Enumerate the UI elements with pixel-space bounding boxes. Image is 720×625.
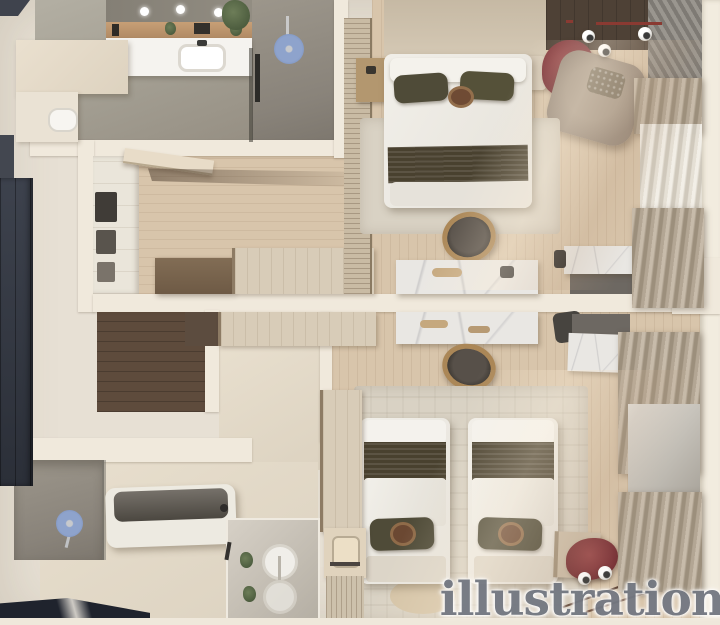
mirror-light-2	[176, 5, 185, 14]
twin-bed-1-foot	[366, 556, 446, 582]
vanity-corner-plant	[222, 0, 250, 30]
shower-glass-panel	[249, 48, 253, 142]
kids-desk	[396, 312, 538, 344]
bath2-plant-1	[240, 552, 253, 568]
shelf-plant	[165, 22, 176, 35]
pendant-light-1	[582, 30, 595, 43]
master-bed-blanket	[388, 145, 529, 183]
wall-bathroom2-top	[0, 438, 252, 462]
twin-bed-1-blanket	[364, 442, 446, 480]
mirror-light-1	[140, 7, 149, 16]
rain-shower-head	[274, 34, 304, 64]
kids-slat-bench	[326, 576, 364, 624]
wall-central-divider	[93, 294, 720, 312]
bathtub-basin	[114, 488, 229, 522]
master-curtain-sheer	[640, 124, 702, 216]
bathtub-faucet	[220, 504, 228, 512]
nightstand-decor	[366, 66, 376, 74]
kitchen-appliance-gray	[96, 230, 116, 254]
wall-kitchen-left	[78, 140, 94, 312]
kids-wardrobe	[320, 390, 362, 532]
master-desk-decor-gold	[432, 268, 462, 277]
shower2-head	[56, 510, 83, 537]
breakfast-tray	[448, 86, 474, 108]
watermark-text: illustration	[440, 572, 720, 625]
entry-dark-panel	[0, 178, 33, 486]
pendant-light-2	[598, 44, 611, 57]
twin-bed-2-cushion	[498, 522, 524, 546]
master-curtain-lower	[632, 208, 704, 308]
toilet-hinge	[278, 556, 281, 582]
bath2-plant-2	[243, 586, 256, 602]
vanity-sink	[178, 44, 226, 72]
twin-bed-2-head	[472, 420, 554, 444]
toilet-reflection	[263, 580, 297, 614]
pendant-light-3	[638, 27, 652, 41]
curtain-rail-red	[596, 22, 662, 25]
master-bed-footboard	[390, 182, 528, 206]
ensuite-side-counter	[16, 40, 128, 94]
console-decor-vase	[554, 250, 566, 268]
ensuite-toilet	[48, 108, 78, 132]
master-desk	[396, 260, 538, 294]
shelf-accessories	[194, 23, 210, 34]
master-console-top	[564, 246, 634, 274]
twin-bed-1-cushion	[390, 522, 416, 546]
wardrobe-dark-wall	[185, 312, 218, 346]
shelf-bottles	[112, 24, 119, 36]
kids-lamp-base	[330, 562, 360, 566]
kitchen-island-cabinet	[155, 258, 233, 294]
shower-door-handle	[255, 54, 260, 102]
wardrobe-corridor-side	[218, 312, 376, 346]
corner-gray-curtain	[648, 0, 702, 88]
master-desk-decor-dark	[500, 266, 514, 278]
apartment-floorplan-render: illustration	[0, 0, 720, 625]
kitchen-small-appliance	[97, 262, 115, 282]
kids-window-glass	[628, 404, 700, 496]
twin-bed-1-head	[364, 420, 446, 444]
master-headboard-wall	[384, 0, 546, 56]
sink-faucet	[197, 40, 207, 46]
ensuite-shower-floor	[252, 0, 336, 142]
kitchen-appliance-dark	[95, 192, 117, 222]
kids-desk-decor-2	[468, 326, 490, 333]
master-pillow-left	[393, 72, 449, 104]
kids-desk-decor	[420, 320, 448, 328]
twin-bed-2-blanket	[472, 442, 554, 480]
corner-dark-top-left	[0, 0, 30, 16]
curtain-rail-red-dash	[566, 20, 573, 23]
